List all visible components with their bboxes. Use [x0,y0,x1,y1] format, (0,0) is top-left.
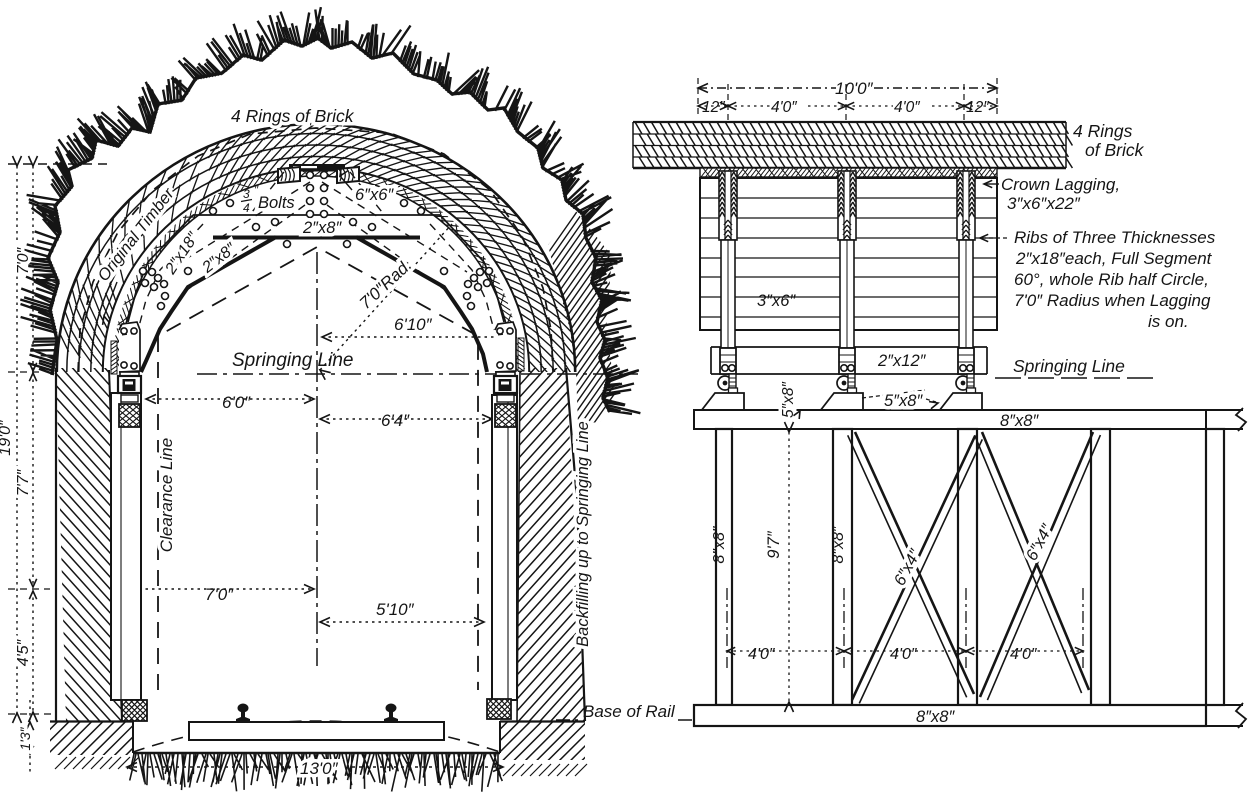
svg-text:5'10″: 5'10″ [376,600,415,619]
svg-text:3: 3 [243,187,250,201]
svg-text:60°, whole Rib half Circle,: 60°, whole Rib half Circle, [1014,270,1209,289]
svg-text:8″x8″: 8″x8″ [1000,412,1039,430]
svg-text:Backfilling up to Springing Li: Backfilling up to Springing Line [574,421,592,647]
svg-text:8″x8″: 8″x8″ [830,525,847,563]
svg-text:Crown Lagging,: Crown Lagging, [1001,175,1120,194]
svg-text:8″x8″: 8″x8″ [711,525,728,563]
svg-text:4'0″: 4'0″ [894,99,920,116]
svg-text:13'0″: 13'0″ [300,759,339,778]
svg-text:2″x12″: 2″x12″ [877,352,927,370]
svg-text:3″x6″x22″: 3″x6″x22″ [1007,194,1081,213]
svg-text:2″x18″each, Full Segment: 2″x18″each, Full Segment [1015,249,1213,268]
svg-text:Clearance Line: Clearance Line [157,438,176,552]
svg-text:8″x8″: 8″x8″ [916,708,955,726]
svg-text:12″: 12″ [702,99,725,116]
svg-text:3″x6″: 3″x6″ [757,292,796,310]
svg-text:19'0″: 19'0″ [0,419,14,456]
svg-text:6'10″: 6'10″ [394,315,433,334]
svg-text:is on.: is on. [1148,312,1189,331]
svg-text:10'0″: 10'0″ [835,79,874,98]
svg-text:Ribs of Three Thicknesses: Ribs of Three Thicknesses [1014,228,1216,247]
svg-text:4'0″: 4'0″ [1010,646,1038,663]
svg-text:4 Rings: 4 Rings [1073,121,1133,141]
svg-text:1'3″: 1'3″ [17,726,33,750]
svg-text:4'0″: 4'0″ [771,99,797,116]
svg-text:Springing Line: Springing Line [1013,356,1125,376]
svg-text:9'7″: 9'7″ [765,530,783,559]
svg-text:of Brick: of Brick [1085,140,1145,160]
svg-text:5″x8″: 5″x8″ [780,382,797,418]
svg-text:2″x8″: 2″x8″ [302,219,342,237]
svg-text:4'5″: 4'5″ [15,638,32,666]
svg-text:7'0″: 7'0″ [15,246,32,274]
svg-text:4 Rings of Brick: 4 Rings of Brick [231,106,355,126]
svg-text:4: 4 [243,201,250,215]
svg-text:4'0″: 4'0″ [748,646,776,663]
svg-text:7'0″ Radius when Lagging: 7'0″ Radius when Lagging [1014,291,1211,310]
svg-text:7'7″: 7'7″ [15,468,32,496]
svg-text:Bolts: Bolts [258,194,295,212]
svg-text:6'4″: 6'4″ [381,411,410,430]
svg-text:4'0″: 4'0″ [890,646,918,663]
svg-text:6'0″: 6'0″ [222,393,251,412]
svg-text:7'0″: 7'0″ [205,585,234,604]
svg-text:6″x6″: 6″x6″ [355,186,394,204]
svg-text:Base of Rail: Base of Rail [583,702,676,721]
svg-text:12″: 12″ [966,99,989,116]
svg-text:Springing Line: Springing Line [232,350,353,371]
svg-text:5″x8″: 5″x8″ [884,392,923,410]
